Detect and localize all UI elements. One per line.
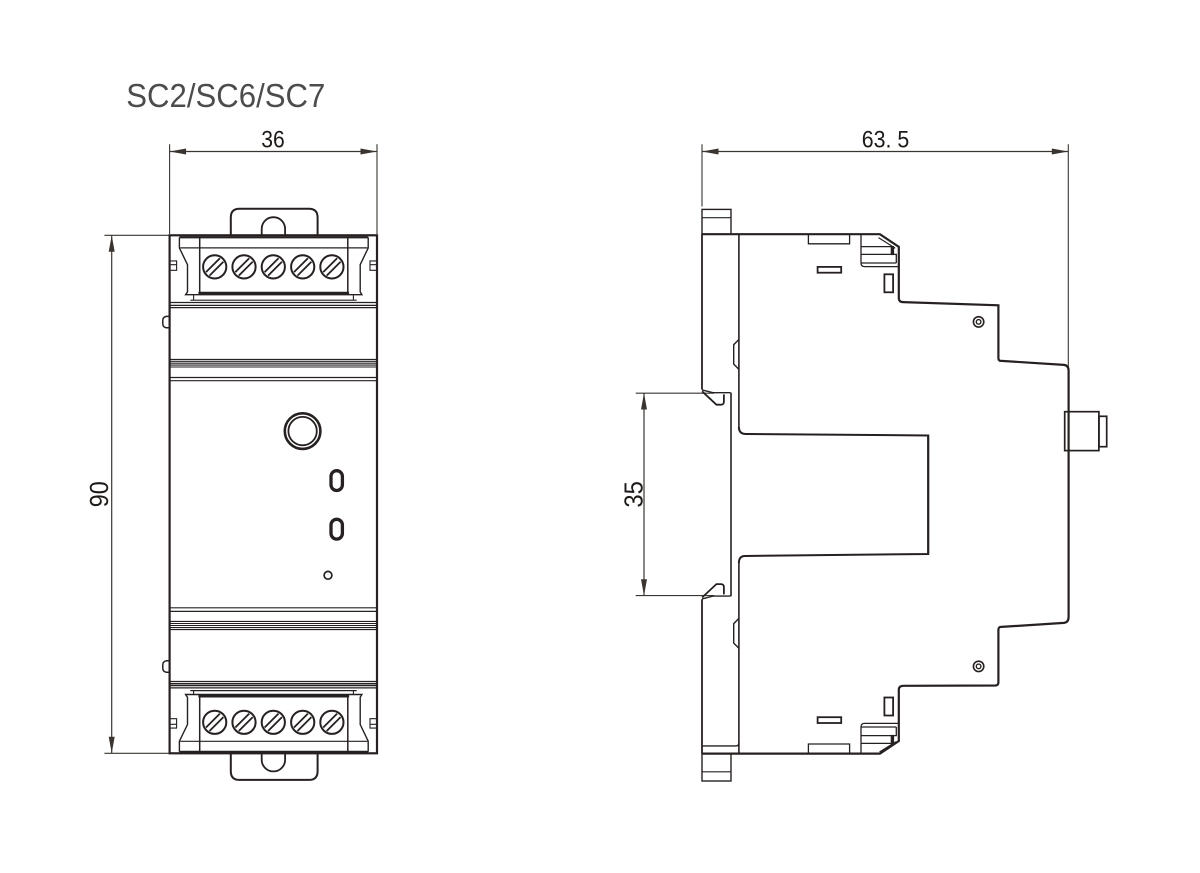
svg-text:SC2/SC6/SC7: SC2/SC6/SC7 (126, 77, 325, 114)
svg-text:36: 36 (261, 127, 285, 154)
svg-text:35: 35 (619, 481, 649, 508)
svg-text:90: 90 (84, 481, 114, 507)
svg-text:63. 5: 63. 5 (862, 127, 910, 154)
